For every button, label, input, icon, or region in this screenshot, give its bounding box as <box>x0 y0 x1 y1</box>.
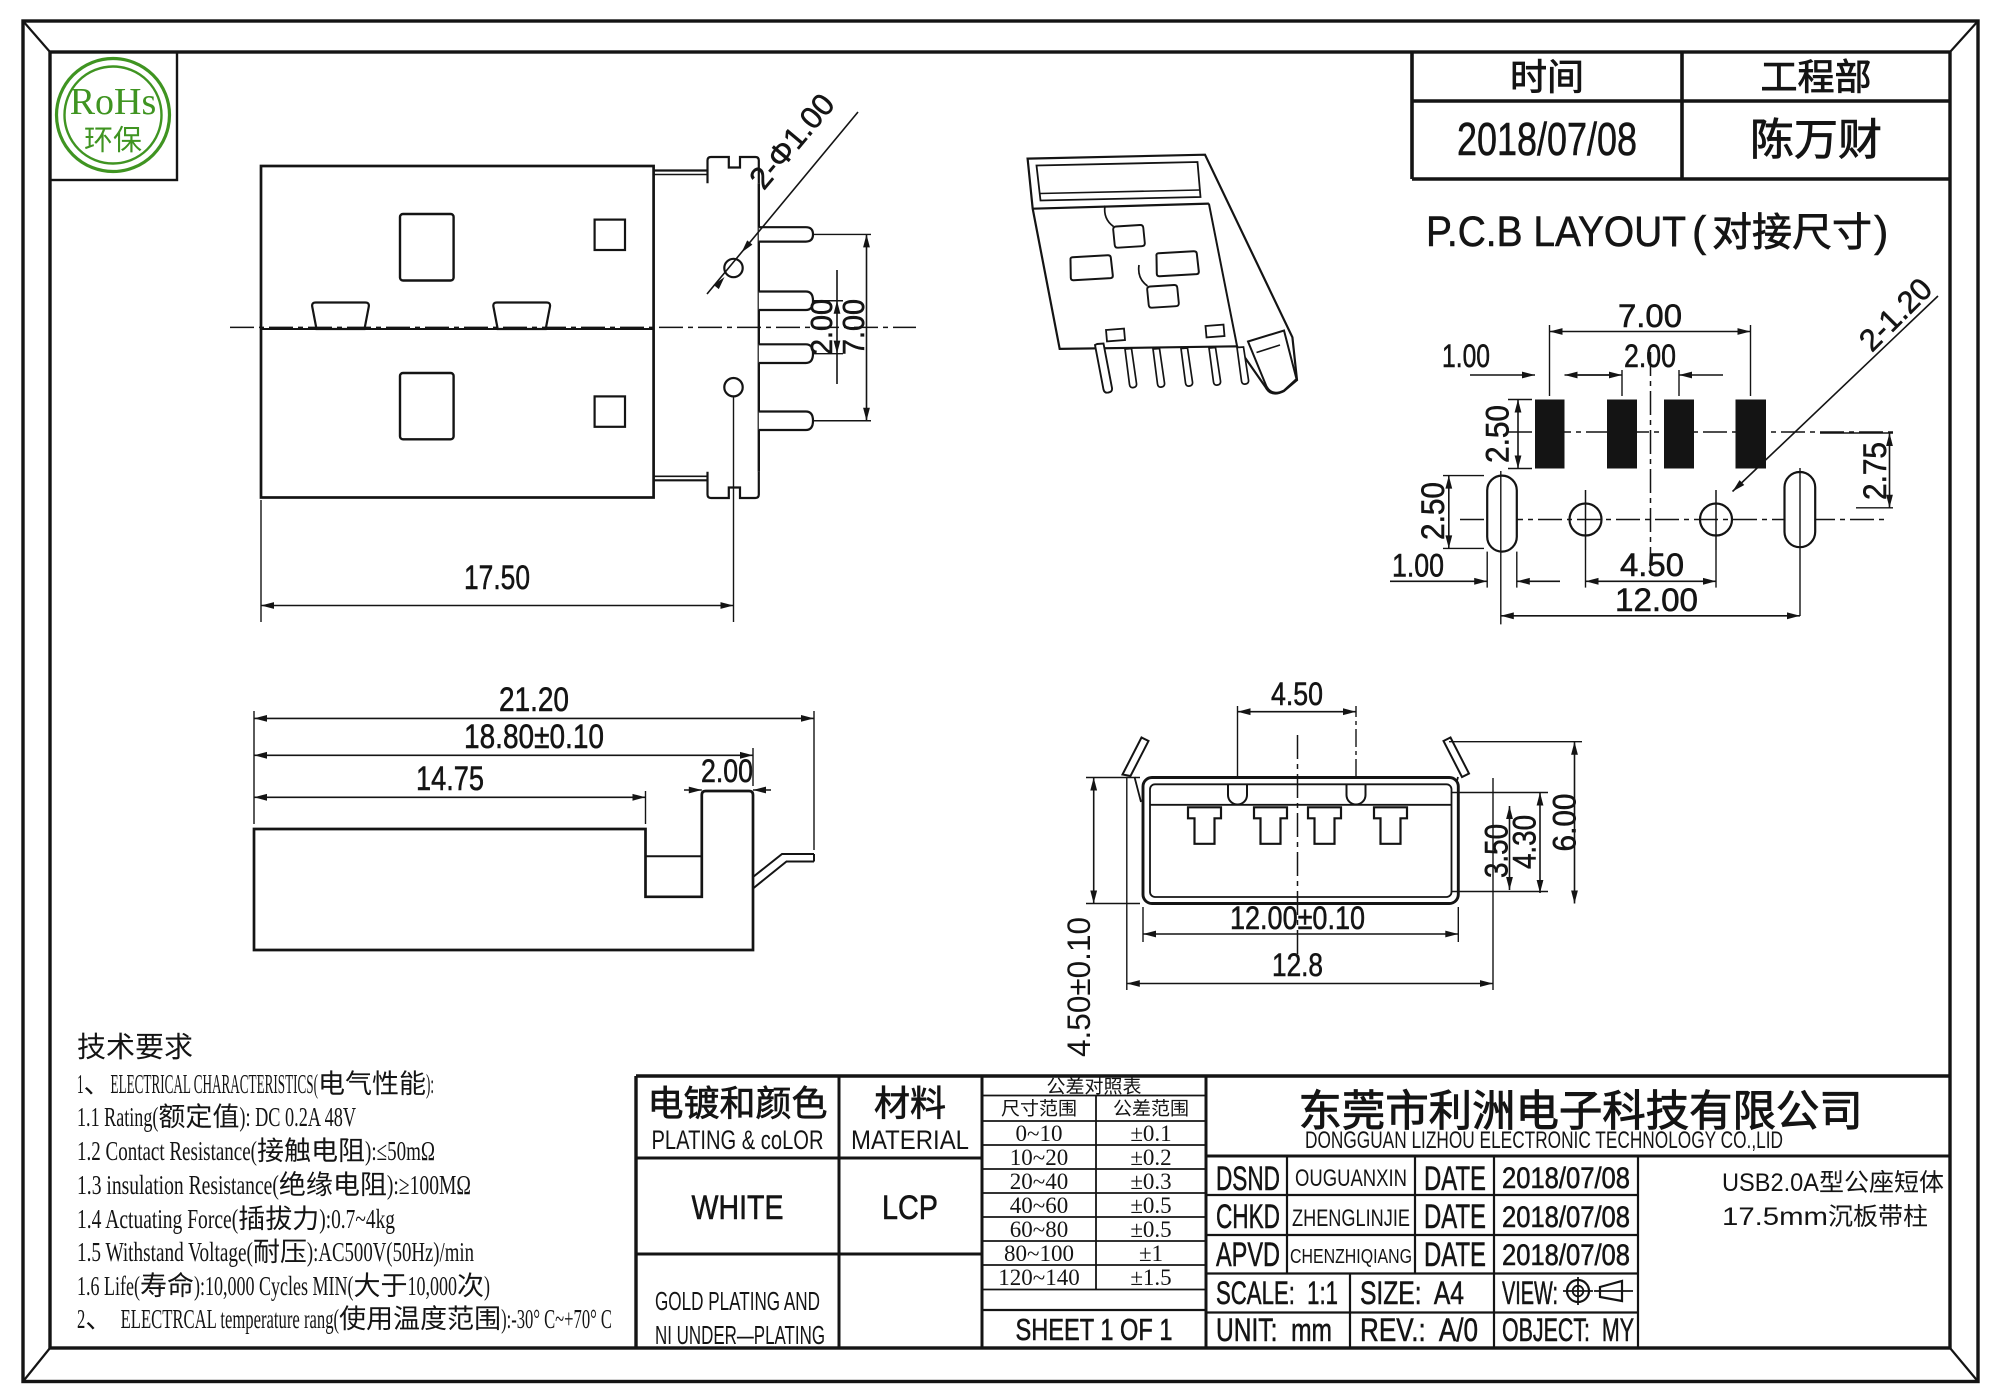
svg-text:):≤50mΩ: ):≤50mΩ <box>365 1136 435 1166</box>
svg-text:17.5mm: 17.5mm <box>1722 1203 1828 1231</box>
svg-text:USB2.0A: USB2.0A <box>1722 1169 1819 1197</box>
svg-text:0~10: 0~10 <box>1016 1121 1063 1146</box>
svg-text:±1.5: ±1.5 <box>1130 1265 1171 1290</box>
svg-text:LCP: LCP <box>882 1189 938 1227</box>
svg-text:1.3 insulation Resistance(: 1.3 insulation Resistance( <box>77 1170 279 1200</box>
svg-text:2.00: 2.00 <box>701 753 753 789</box>
svg-text:UNIT: mm: UNIT: mm <box>1216 1312 1332 1348</box>
svg-text:6.00: 6.00 <box>1547 794 1583 852</box>
svg-text:DONGGUAN LIZHOU ELECTRONIC TEC: DONGGUAN LIZHOU ELECTRONIC TECHNOLOGY CO… <box>1305 1127 1783 1154</box>
svg-text:2.50: 2.50 <box>1480 405 1516 463</box>
svg-text:CHKD: CHKD <box>1216 1198 1280 1236</box>
svg-text:OBJECT: MY: OBJECT: MY <box>1502 1312 1634 1348</box>
svg-text:21.20: 21.20 <box>499 681 569 719</box>
svg-text:): ) <box>1874 208 1888 256</box>
svg-text:40~60: 40~60 <box>1010 1193 1068 1218</box>
svg-text:12.8: 12.8 <box>1272 947 1323 983</box>
svg-text:2018/07/08: 2018/07/08 <box>1502 1201 1630 1234</box>
svg-text:17.50: 17.50 <box>464 559 530 597</box>
svg-text:2.00: 2.00 <box>804 299 839 355</box>
svg-text:80~100: 80~100 <box>1004 1241 1074 1266</box>
svg-text:1.00: 1.00 <box>1392 548 1444 584</box>
svg-text:2018/07/08: 2018/07/08 <box>1502 1162 1630 1195</box>
svg-text:1.5 Withstand Voltage(: 1.5 Withstand Voltage( <box>77 1237 253 1267</box>
svg-text:±0.5: ±0.5 <box>1130 1217 1171 1242</box>
svg-text:):10,000 Cycles MIN(: ):10,000 Cycles MIN( <box>194 1271 354 1301</box>
svg-text:): ) <box>484 1271 490 1301</box>
svg-text:±0.2: ±0.2 <box>1130 1145 1171 1170</box>
svg-text:14.75: 14.75 <box>416 760 484 798</box>
svg-text:VIEW:: VIEW: <box>1502 1275 1558 1311</box>
svg-text:PLATING & coLOR: PLATING & coLOR <box>652 1125 824 1155</box>
svg-text:2: 2 <box>77 1304 85 1334</box>
svg-text:):≥100MΩ: ):≥100MΩ <box>387 1170 471 1200</box>
svg-text:CHENZHIQIANG: CHENZHIQIANG <box>1290 1246 1412 1268</box>
svg-text:):-30° C~+70° C: ):-30° C~+70° C <box>501 1304 612 1334</box>
svg-text:DSND: DSND <box>1216 1160 1280 1198</box>
svg-text:REV.: A/0: REV.: A/0 <box>1360 1312 1478 1348</box>
svg-text:2.50: 2.50 <box>1415 482 1451 540</box>
svg-text:2.00: 2.00 <box>1624 338 1676 374</box>
svg-text:1: 1 <box>77 1069 84 1099</box>
svg-text:10,000: 10,000 <box>407 1271 457 1301</box>
svg-text:APVD: APVD <box>1216 1236 1280 1274</box>
svg-text:2018/07/08: 2018/07/08 <box>1502 1239 1630 1272</box>
svg-text:SIZE: A4: SIZE: A4 <box>1360 1275 1464 1311</box>
svg-text:DATE: DATE <box>1424 1160 1486 1198</box>
svg-text:12.00: 12.00 <box>1615 582 1698 618</box>
svg-text:1.1 Rating(: 1.1 Rating( <box>77 1102 158 1132</box>
svg-text:10~20: 10~20 <box>1010 1145 1068 1170</box>
svg-text:±0.1: ±0.1 <box>1130 1121 1171 1146</box>
svg-text:±0.3: ±0.3 <box>1130 1169 1171 1194</box>
svg-text:2.75: 2.75 <box>1857 442 1893 500</box>
svg-text:7.00: 7.00 <box>1618 298 1682 334</box>
svg-text:NI UNDER—PLATING: NI UNDER—PLATING <box>655 1320 825 1350</box>
svg-text:3.50: 3.50 <box>1479 824 1515 878</box>
svg-text:):0.7~4kg: ):0.7~4kg <box>319 1204 395 1234</box>
svg-text:SCALE: 1:1: SCALE: 1:1 <box>1216 1275 1338 1311</box>
svg-text:1.00: 1.00 <box>1442 338 1490 374</box>
svg-text:12.00±0.10: 12.00±0.10 <box>1230 900 1365 936</box>
svg-text:1.2 Contact Resistance(: 1.2 Contact Resistance( <box>77 1136 257 1166</box>
svg-text:ELECTRICAL CHARACTERISTICS(: ELECTRICAL CHARACTERISTICS( <box>111 1069 318 1099</box>
svg-text:7.00: 7.00 <box>836 299 871 355</box>
svg-text:OUGUANXIN: OUGUANXIN <box>1295 1165 1407 1192</box>
svg-text:DATE: DATE <box>1424 1236 1486 1274</box>
svg-text:ZHENGLINJIE: ZHENGLINJIE <box>1292 1205 1410 1232</box>
svg-text:2018/07/08: 2018/07/08 <box>1457 113 1637 165</box>
svg-text:±1: ±1 <box>1139 1241 1163 1266</box>
svg-text:18.80±0.10: 18.80±0.10 <box>464 718 604 756</box>
svg-text:P.C.B LAYOUT: P.C.B LAYOUT <box>1426 208 1686 256</box>
svg-text:20~40: 20~40 <box>1010 1169 1068 1194</box>
svg-text:SHEET 1 OF 1: SHEET 1 OF 1 <box>1016 1312 1173 1347</box>
svg-text:1.6 Life(: 1.6 Life( <box>77 1271 140 1301</box>
svg-text:60~80: 60~80 <box>1010 1217 1068 1242</box>
svg-text:4.50: 4.50 <box>1620 547 1684 583</box>
svg-text:MATERIAL: MATERIAL <box>851 1125 969 1155</box>
svg-text:):: ): <box>426 1069 434 1099</box>
svg-text:DATE: DATE <box>1424 1198 1486 1236</box>
svg-text:4.50±0.10: 4.50±0.10 <box>1061 917 1097 1057</box>
svg-text:(: ( <box>1692 208 1707 256</box>
svg-text:RoHs: RoHs <box>70 81 157 123</box>
svg-text:±0.5: ±0.5 <box>1130 1193 1171 1218</box>
svg-text:4.50: 4.50 <box>1271 676 1323 712</box>
svg-text:120~140: 120~140 <box>998 1265 1079 1290</box>
svg-text:WHITE: WHITE <box>692 1189 784 1227</box>
svg-text:): DC 0.2A 48V: ): DC 0.2A 48V <box>239 1102 356 1132</box>
svg-text:GOLD PLATING AND: GOLD PLATING AND <box>655 1286 820 1316</box>
svg-text:):AC500V(50Hz)/min: ):AC500V(50Hz)/min <box>307 1237 474 1267</box>
svg-text:1.4 Actuating Force(: 1.4 Actuating Force( <box>77 1204 238 1234</box>
svg-text:ELECTRCAL temperature rang(: ELECTRCAL temperature rang( <box>112 1304 339 1334</box>
